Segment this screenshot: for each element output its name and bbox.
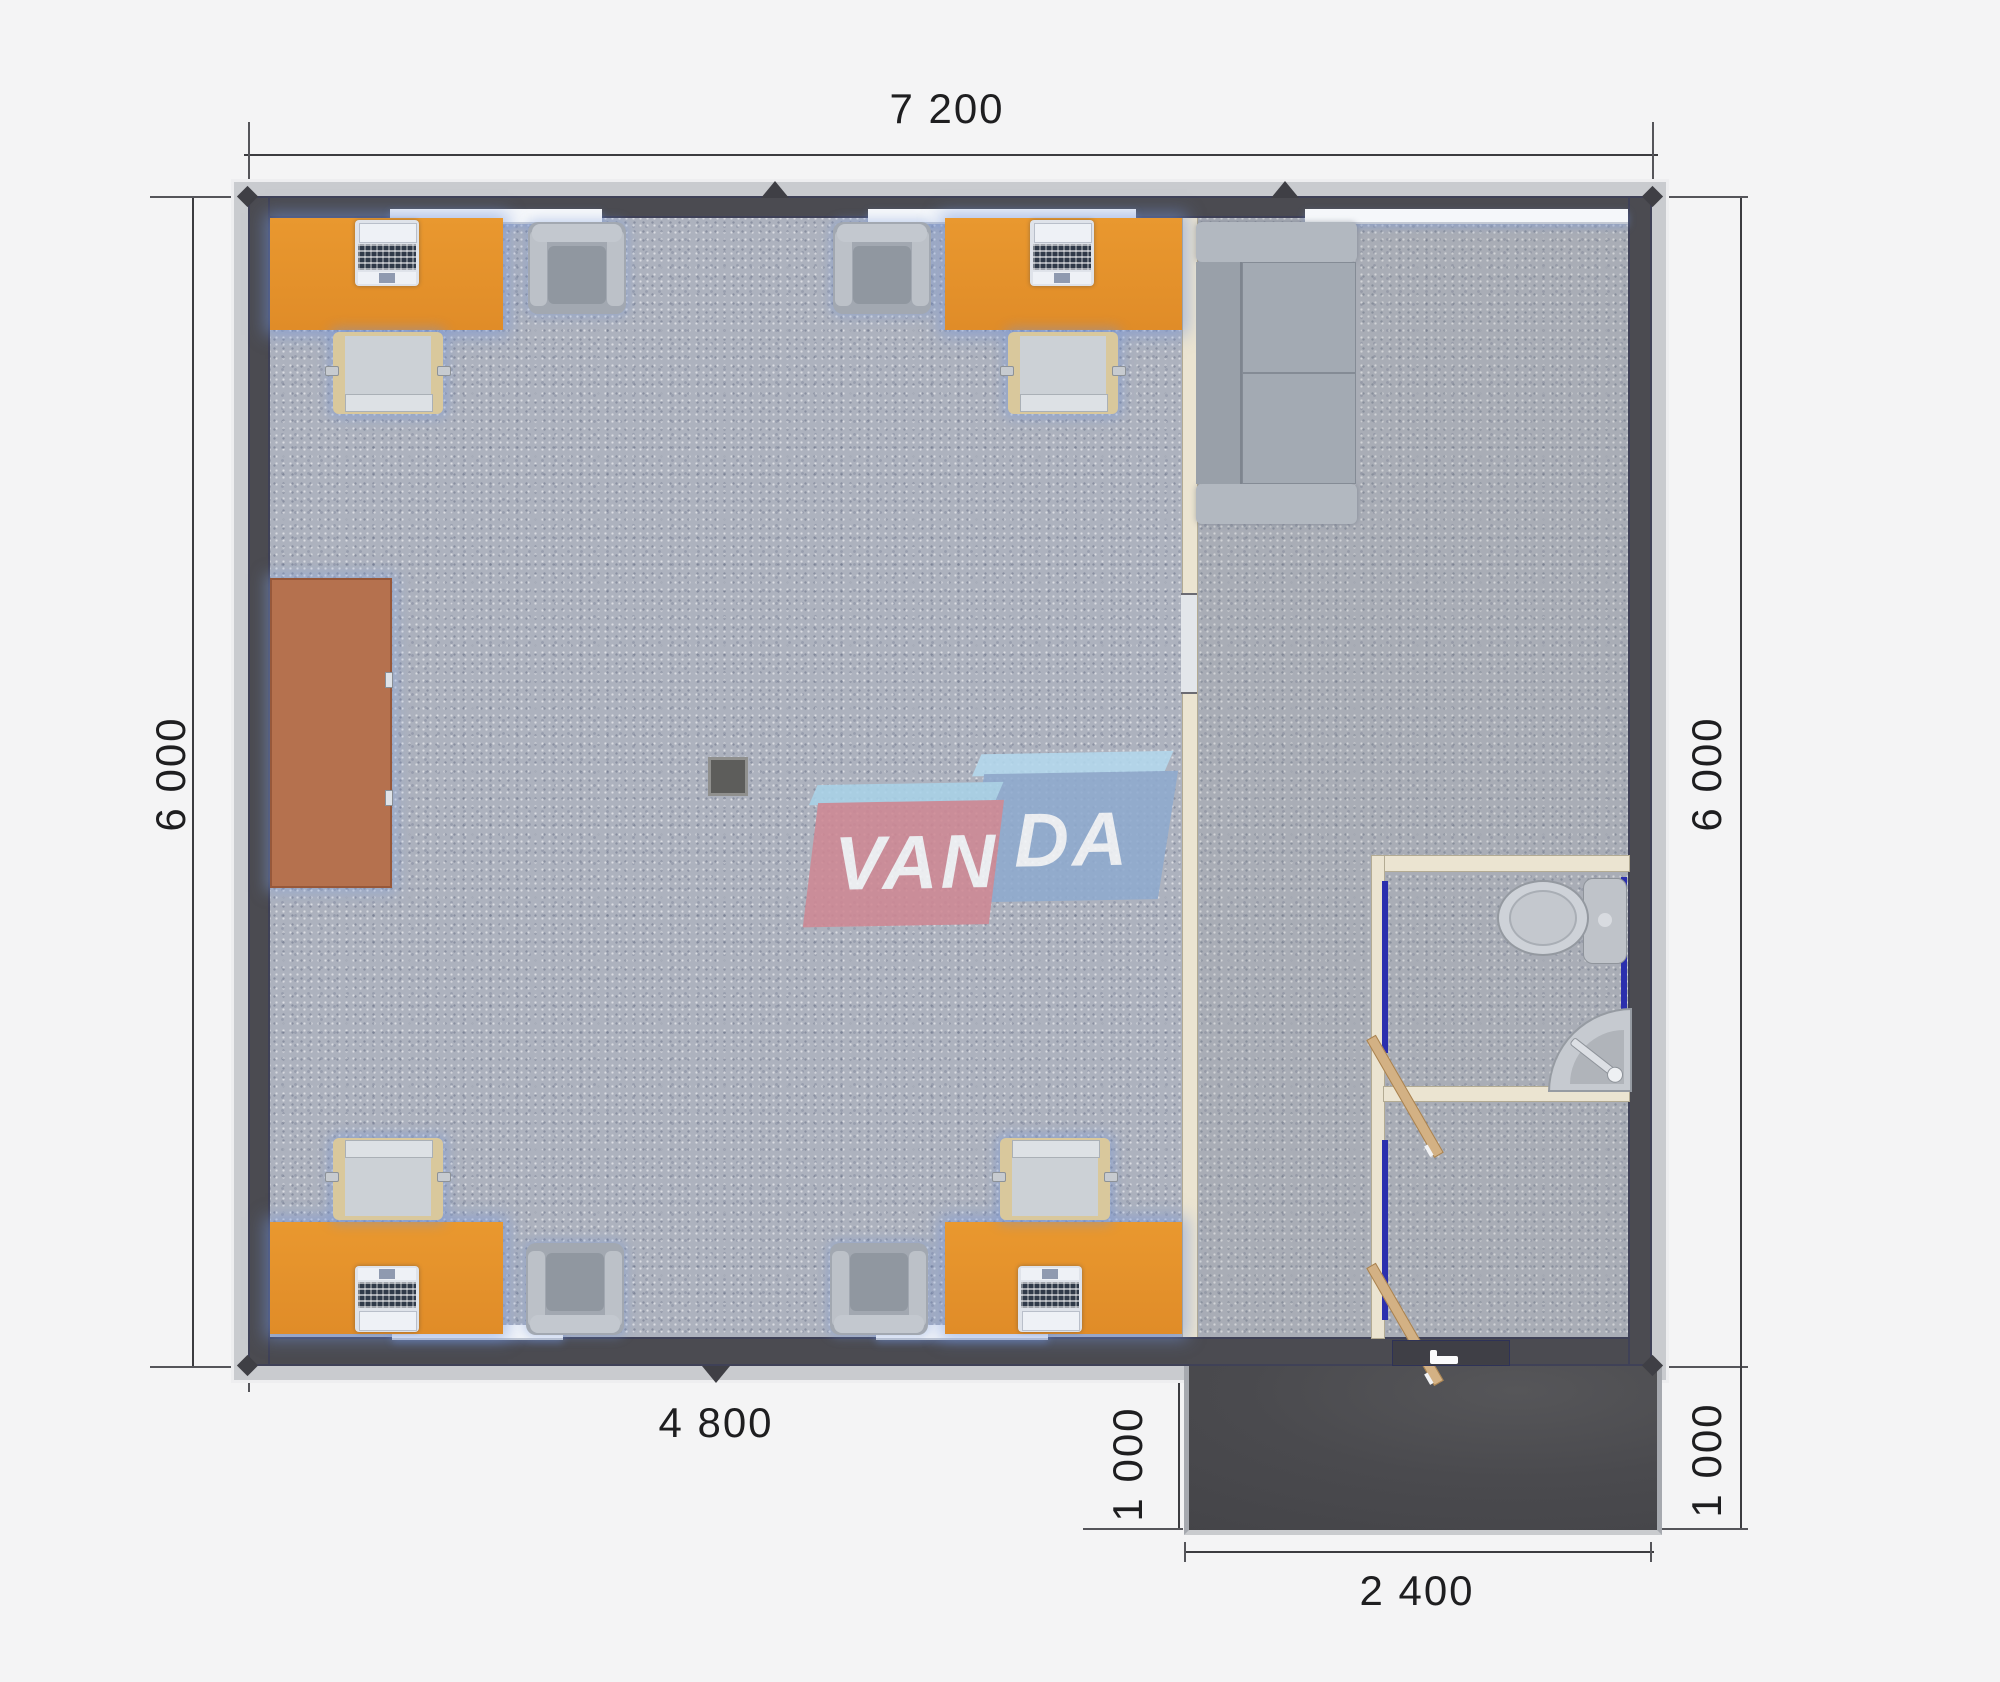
bathroom-wall-north bbox=[1371, 855, 1630, 872]
dimension-porch-left-line bbox=[1178, 1376, 1180, 1530]
cabinet-handle bbox=[385, 790, 393, 806]
wall-joint-marker-bottom bbox=[702, 1366, 730, 1383]
wall-left bbox=[248, 196, 270, 1366]
desk-chair bbox=[333, 1138, 443, 1220]
desk-chair bbox=[1000, 1138, 1110, 1220]
desk-chair bbox=[1008, 332, 1118, 414]
dimension-left-label: 6 000 bbox=[148, 689, 194, 859]
desk-chair bbox=[333, 332, 443, 414]
laptop bbox=[1030, 220, 1094, 286]
bathroom-door-frame bbox=[1382, 881, 1388, 1053]
desk bbox=[270, 1222, 503, 1334]
laptop bbox=[355, 1266, 419, 1332]
dimension-porch-bottom-line bbox=[1184, 1551, 1654, 1553]
watermark-text-van: VAN bbox=[834, 818, 999, 908]
dimension-porch-right-tick-bottom bbox=[1652, 1528, 1748, 1530]
dimension-right-line bbox=[1740, 196, 1742, 1366]
dimension-porch-left-label: 1 000 bbox=[1105, 1379, 1151, 1549]
entry-door-handle bbox=[1430, 1350, 1437, 1362]
dimension-porch-right-line bbox=[1740, 1366, 1742, 1530]
dimension-bottom-left-label: 4 800 bbox=[631, 1400, 801, 1446]
dimension-left-line bbox=[192, 196, 194, 1366]
floor-service-box bbox=[708, 757, 748, 796]
armchair bbox=[833, 222, 931, 314]
dimension-porch-right-label: 1 000 bbox=[1684, 1375, 1730, 1545]
desk bbox=[945, 218, 1182, 330]
porch-deck bbox=[1184, 1366, 1662, 1535]
armchair bbox=[830, 1243, 928, 1335]
armchair bbox=[528, 222, 626, 314]
storage-cabinet bbox=[270, 578, 392, 888]
dimension-porch-bottom-tick-right bbox=[1650, 1542, 1652, 1562]
cabinet-handle bbox=[385, 672, 393, 688]
desk bbox=[270, 218, 503, 330]
wall-joint-marker-top-1 bbox=[761, 181, 789, 198]
armchair bbox=[526, 1243, 624, 1335]
toilet-tank bbox=[1583, 878, 1627, 964]
dimension-porch-left-tick-bottom bbox=[1083, 1528, 1183, 1530]
watermark-text-da: DA bbox=[1013, 796, 1130, 885]
dimension-top-line bbox=[244, 154, 1658, 156]
sofa bbox=[1196, 222, 1357, 524]
dimension-right-label: 6 000 bbox=[1684, 689, 1730, 859]
toilet-flush-button bbox=[1598, 913, 1612, 927]
dimension-porch-bottom-tick-left bbox=[1184, 1542, 1186, 1562]
dimension-right-tick-top bbox=[1652, 196, 1748, 198]
dimension-porch-bottom-label: 2 400 bbox=[1332, 1568, 1502, 1614]
floor-plan: 7 200 6 000 6 000 4 800 1 000 2 400 1 00… bbox=[0, 0, 2000, 1682]
toilet bbox=[1497, 880, 1589, 956]
wall-right bbox=[1628, 196, 1652, 1366]
desk bbox=[945, 1222, 1182, 1334]
dimension-top-label: 7 200 bbox=[862, 86, 1032, 132]
dimension-right-tick-bottom bbox=[1652, 1366, 1748, 1368]
laptop bbox=[1018, 1266, 1082, 1332]
vanda-watermark: VAN DA bbox=[807, 749, 1182, 930]
partition-doorway bbox=[1181, 593, 1197, 694]
laptop bbox=[355, 220, 419, 286]
wall-joint-marker-top-2 bbox=[1271, 181, 1299, 198]
